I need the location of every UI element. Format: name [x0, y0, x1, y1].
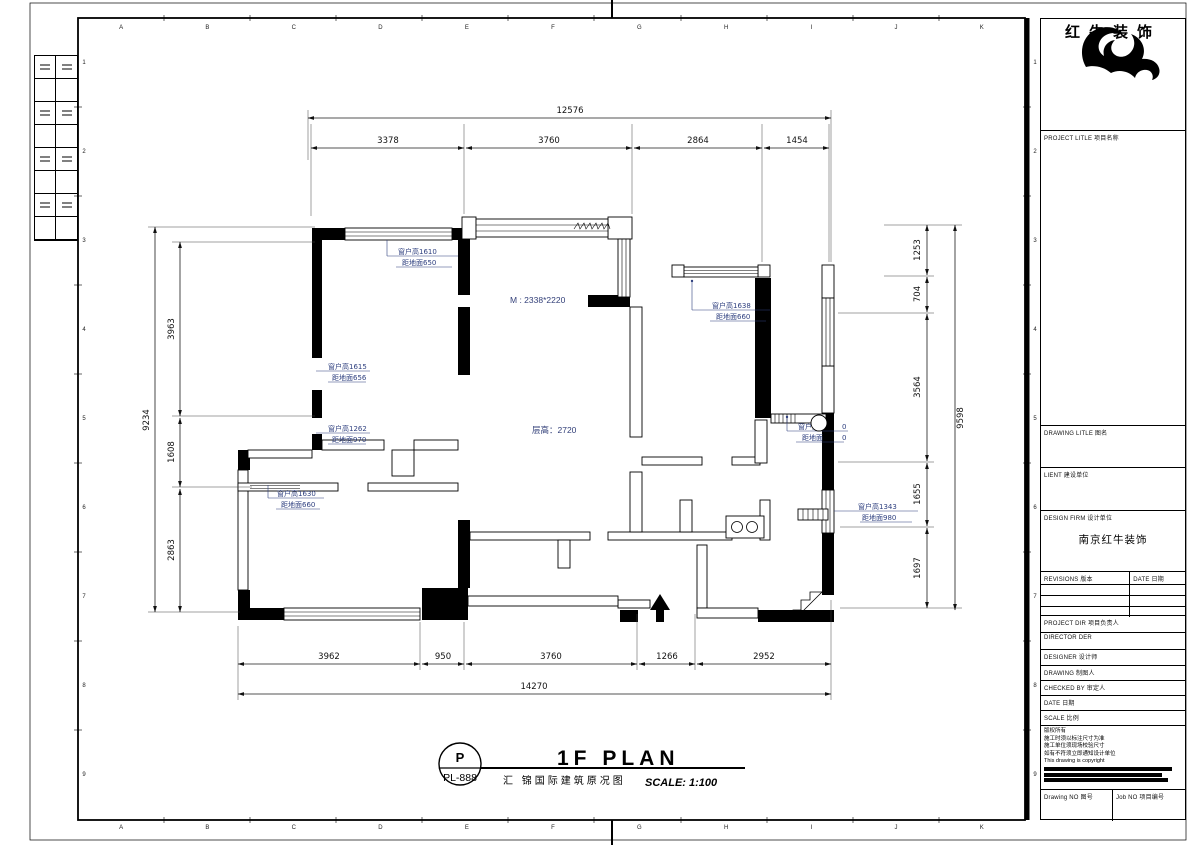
strip-cell [35, 148, 56, 171]
grid-letter: E [465, 25, 469, 31]
redacted-line [1044, 773, 1162, 777]
project-title-label: PROJECT LITLE 项目名称 [1041, 131, 1185, 142]
grid-number: 7 [1033, 594, 1036, 600]
grid-letters-bottom: A B C D E F G H I J K [78, 825, 1025, 831]
project-dir-label: PROJECT DIR 项目负责人 [1041, 616, 1185, 627]
grid-number: 1 [82, 60, 85, 66]
design-firm-value: 南京红牛装饰 [1041, 532, 1185, 547]
drawing-title-cn: 汇 锦国际建筑原况图 [503, 774, 626, 787]
grid-letter: I [811, 25, 813, 31]
grid-letter: J [894, 25, 897, 31]
detail-bubble-letter: P [456, 750, 465, 765]
client-section: LIENT 建设单位 [1041, 467, 1185, 510]
dim-label: 1454 [786, 136, 808, 146]
grid-number: 8 [1033, 683, 1036, 689]
dim-label: 9598 [956, 407, 966, 429]
grid-number: 1 [1033, 60, 1036, 66]
sheet-frame [30, 0, 1186, 845]
grid-number: 9 [82, 772, 85, 778]
svg-text:窗户高1630: 窗户高1630 [277, 489, 316, 498]
drawing-title-en: 1F PLAN [557, 747, 680, 770]
dim-label: 1266 [656, 652, 678, 662]
window-note: 窗户高1610 距地面650 [387, 240, 458, 267]
grid-letter: D [378, 825, 382, 831]
kitchen-sink [726, 516, 764, 538]
svg-text:窗户高1343: 窗户高1343 [858, 502, 897, 511]
rednull-logo-icon [1041, 21, 1187, 105]
project-dir-section: PROJECT DIR 项目负责人 [1041, 615, 1185, 632]
dim-label: 3378 [377, 136, 399, 146]
grid-letter: A [119, 825, 123, 831]
drawing-person-section: DRAWING 制图人 [1041, 665, 1185, 680]
dim-label: 3962 [318, 652, 340, 662]
window-grille-lower [798, 509, 828, 520]
grid-number: 4 [1033, 327, 1036, 333]
grid-letter: G [637, 825, 642, 831]
strip-cell [35, 217, 56, 240]
director-section: DIRECTOR DER [1041, 632, 1185, 649]
dim-label: 950 [435, 652, 451, 662]
logo-section: 红牛装饰 [1041, 21, 1185, 130]
dim-label: 704 [913, 286, 923, 302]
grid-letter: G [637, 25, 642, 31]
note-line: 施工单位须现场校验尺寸 [1044, 743, 1182, 751]
svg-text:距地面660: 距地面660 [281, 500, 315, 509]
note-line: 如有不符须立即通知设计单位 [1044, 751, 1182, 759]
project-title-section: PROJECT LITLE 项目名称 [1041, 130, 1185, 425]
date-section: DATE 日期 [1041, 695, 1185, 710]
svg-text:距地面650: 距地面650 [402, 258, 436, 267]
director-label: DIRECTOR DER [1041, 633, 1185, 641]
scale-label: SCALE 比例 [1041, 711, 1185, 722]
column-marker-icon [811, 415, 827, 431]
strip-cell [56, 217, 77, 240]
svg-text:窗户高1610: 窗户高1610 [398, 247, 437, 256]
dim-label: 2864 [687, 136, 709, 146]
svg-text:窗户高1262: 窗户高1262 [328, 424, 367, 433]
checked-by-section: CHECKED BY 审定人 [1041, 680, 1185, 695]
strip-cell [35, 56, 56, 79]
svg-text:距地面980: 距地面980 [862, 513, 896, 522]
design-firm-section: DESIGN FIRM 设计单位 南京红牛装饰 [1041, 510, 1185, 571]
title-block: 红牛装饰 PROJECT LITLE 项目名称 DRAWING LITLE 图名… [1040, 18, 1186, 820]
grid-letter: K [980, 25, 984, 31]
left-signature-strip [34, 55, 78, 241]
grid-number: 9 [1033, 772, 1036, 778]
dim-label: 1253 [913, 239, 923, 261]
strip-cell [56, 171, 77, 194]
svg-text:窗户高1615: 窗户高1615 [328, 362, 367, 371]
grid-letter: F [551, 25, 555, 31]
strip-cell [56, 148, 77, 171]
grid-letter: B [205, 825, 209, 831]
grid-number: 7 [82, 594, 85, 600]
dim-label: 1655 [913, 483, 923, 505]
grid-letter: C [292, 825, 296, 831]
dim-label: 2863 [167, 539, 177, 561]
svg-text:距地面970: 距地面970 [332, 435, 366, 444]
detail-bubble-number: PL-888 [443, 772, 477, 784]
revisions-section: REVISIONS 版本 DATE 日期 [1041, 571, 1185, 615]
grid-number: 4 [82, 327, 85, 333]
job-no-label: Job NO 项目编号 [1113, 790, 1185, 821]
svg-text:0: 0 [842, 423, 846, 431]
window-annotations: 窗户高1610 距地面650 窗户高1615 距地面656 窗户高1262 距地… [268, 240, 918, 522]
svg-text:距地面: 距地面 [802, 433, 823, 442]
redacted-line [1044, 778, 1168, 782]
revision-row [1041, 584, 1185, 595]
drawing-sheet: 12576 3378 3760 2864 1454 3962 950 3760 … [0, 0, 1200, 845]
strip-cell [35, 79, 56, 102]
windows [250, 219, 834, 620]
strip-cell [56, 79, 77, 102]
grid-letter: I [811, 825, 813, 831]
floor-plan-svg: 12576 3378 3760 2864 1454 3962 950 3760 … [0, 0, 1200, 845]
strip-cell [35, 171, 56, 194]
grid-letter: B [205, 25, 209, 31]
dim-label: 3564 [913, 376, 923, 398]
dim-label: 1697 [913, 557, 923, 579]
grid-letter: C [292, 25, 296, 31]
revision-row [1041, 595, 1185, 606]
strip-cell [56, 102, 77, 125]
dim-label: 3760 [540, 652, 562, 662]
redacted-line [1044, 767, 1172, 771]
notes-section: 版权所有 施工时须以标注尺寸为准 施工单位须现场校验尺寸 如有不符须立即通知设计… [1041, 725, 1185, 789]
grid-number: 8 [82, 683, 85, 689]
scale-section: SCALE 比例 [1041, 710, 1185, 725]
grid-letter: H [724, 25, 728, 31]
grid-number: 5 [1033, 416, 1036, 422]
design-firm-label: DESIGN FIRM 设计单位 [1041, 511, 1185, 522]
designer-label: DESIGNER 设计师 [1041, 650, 1185, 661]
window-note: 窗户高1343 距地面980 [834, 502, 918, 522]
dim-label: 12576 [556, 106, 583, 116]
grid-letter: E [465, 825, 469, 831]
note-line: This drawing is copyright [1044, 758, 1182, 766]
window-note: 窗户高1615 距地面656 [316, 362, 370, 382]
revisions-date-label: DATE 日期 [1130, 572, 1167, 584]
strip-cell [35, 194, 56, 217]
strip-cell [56, 56, 77, 79]
dim-label: 2952 [753, 652, 775, 662]
grid-number: 3 [82, 238, 85, 244]
drawing-title-label: DRAWING LITLE 图名 [1041, 426, 1185, 437]
dim-label: 3760 [538, 136, 560, 146]
grid-number: 3 [1033, 238, 1036, 244]
drawing-scale: SCALE: 1:100 [645, 777, 718, 789]
dim-label: 9234 [142, 409, 152, 431]
grid-letter: K [980, 825, 984, 831]
note-line: 施工时须以标注尺寸为准 [1044, 736, 1182, 744]
ceiling-height-label: 层高：2720 [532, 425, 577, 435]
note-line: 版权所有 [1044, 728, 1182, 736]
entry-arrow-icon [650, 594, 670, 622]
grid-letter: A [119, 25, 123, 31]
checked-by-label: CHECKED BY 审定人 [1041, 681, 1185, 692]
door-size-label: M : 2338*2220 [510, 295, 566, 305]
grid-letters-top: A B C D E F G H I J K [78, 25, 1025, 31]
strip-cell [35, 102, 56, 125]
svg-text:距地面660: 距地面660 [716, 312, 750, 321]
client-label: LIENT 建设单位 [1041, 468, 1185, 479]
svg-text:窗户高1638: 窗户高1638 [712, 301, 751, 310]
designer-section: DESIGNER 设计师 [1041, 649, 1185, 665]
grid-number: 6 [82, 505, 85, 511]
date-label: DATE 日期 [1041, 696, 1185, 707]
strip-cell [35, 125, 56, 148]
grid-letter: J [894, 825, 897, 831]
svg-text:距地面656: 距地面656 [332, 373, 367, 382]
drawing-title-section: DRAWING LITLE 图名 [1041, 425, 1185, 467]
grid-number: 6 [1033, 505, 1036, 511]
grid-number: 2 [82, 149, 85, 155]
drawing-no-label: Drawing NO 图号 [1041, 790, 1113, 821]
dim-label: 14270 [520, 682, 547, 692]
grid-number: 2 [1033, 149, 1036, 155]
drawing-no-section: Drawing NO 图号 Job NO 项目编号 [1041, 789, 1185, 821]
dim-label: 1608 [167, 441, 177, 463]
strip-cell [56, 125, 77, 148]
drawing-title-bar: P PL-888 1F PLAN 汇 锦国际建筑原况图 SCALE: 1:100 [439, 743, 745, 789]
dim-label: 3963 [167, 318, 177, 340]
grid-number: 5 [82, 416, 85, 422]
grid-letter: D [378, 25, 382, 31]
grid-letter: F [551, 825, 555, 831]
strip-cell [56, 194, 77, 217]
grid-letter: H [724, 825, 728, 831]
svg-text:0: 0 [842, 434, 846, 442]
grid-numbers-left: 1 2 3 4 5 6 7 8 9 [79, 18, 89, 820]
revisions-label: REVISIONS 版本 [1041, 572, 1130, 584]
drawing-person-label: DRAWING 制图人 [1041, 666, 1185, 677]
grid-numbers-right: 1 2 3 4 5 6 7 8 9 [1030, 18, 1040, 820]
